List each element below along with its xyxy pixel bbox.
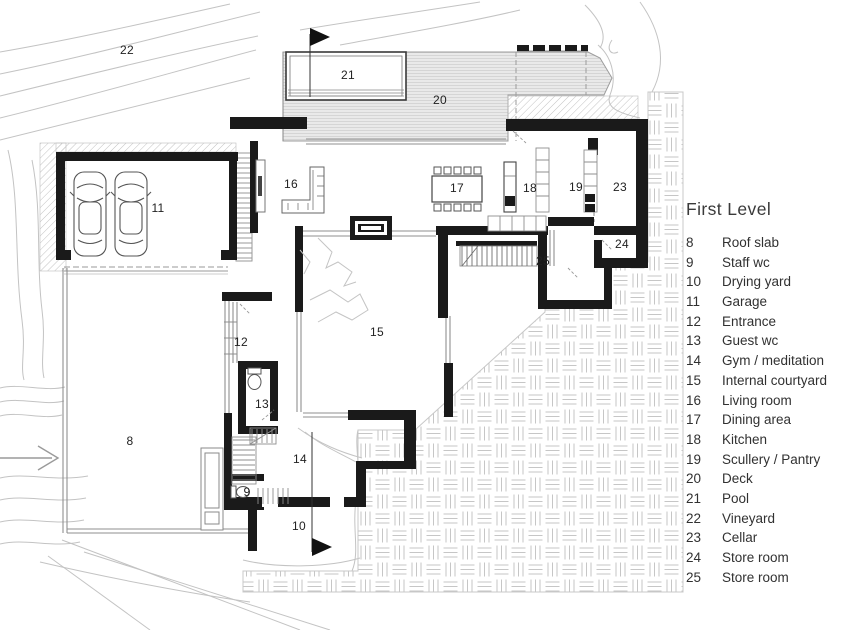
pool bbox=[286, 28, 406, 100]
scullery-shelves bbox=[536, 148, 597, 212]
legend-number: 19 bbox=[686, 452, 722, 467]
legend-number: 23 bbox=[686, 530, 722, 545]
room-label-9: 9 bbox=[244, 485, 251, 499]
room-label-11: 11 bbox=[151, 201, 164, 215]
legend-row: 15Internal courtyard bbox=[686, 373, 850, 393]
legend-number: 18 bbox=[686, 432, 722, 447]
legend-row: 21Pool bbox=[686, 491, 850, 511]
room-label-15: 15 bbox=[370, 325, 384, 339]
legend-number: 9 bbox=[686, 255, 722, 270]
room-label-23: 23 bbox=[613, 180, 627, 194]
legend-label: Internal courtyard bbox=[722, 373, 827, 388]
room-label-18: 18 bbox=[523, 181, 537, 195]
legend-row: 23Cellar bbox=[686, 530, 850, 550]
legend-row: 24Store room bbox=[686, 550, 850, 570]
legend-label: Store room bbox=[722, 570, 789, 585]
toilet-icon bbox=[248, 368, 261, 390]
legend-number: 24 bbox=[686, 550, 722, 565]
kitchen-cabinets bbox=[488, 216, 546, 231]
room-label-17: 17 bbox=[450, 181, 464, 195]
legend-row: 12Entrance bbox=[686, 314, 850, 334]
legend-row: 9Staff wc bbox=[686, 255, 850, 275]
legend-label: Dining area bbox=[722, 412, 791, 427]
legend-label: Pool bbox=[722, 491, 749, 506]
courtyard-sketch bbox=[298, 238, 368, 462]
legend-number: 13 bbox=[686, 333, 722, 348]
legend-number: 20 bbox=[686, 471, 722, 486]
room-label-10: 10 bbox=[292, 519, 306, 533]
room-label-13: 13 bbox=[255, 397, 269, 411]
legend-row: 14Gym / meditation bbox=[686, 353, 850, 373]
fireplace-icon bbox=[350, 216, 392, 240]
legend-label: Living room bbox=[722, 393, 792, 408]
room-label-20: 20 bbox=[433, 93, 447, 107]
legend-row: 20Deck bbox=[686, 471, 850, 491]
legend-label: Entrance bbox=[722, 314, 776, 329]
legend-number: 25 bbox=[686, 570, 722, 585]
legend-number: 17 bbox=[686, 412, 722, 427]
legend-row: 10Drying yard bbox=[686, 274, 850, 294]
legend-label: Roof slab bbox=[722, 235, 779, 250]
legend-row: 18Kitchen bbox=[686, 432, 850, 452]
room-label-24: 24 bbox=[615, 237, 629, 251]
legend-row: 25Store room bbox=[686, 570, 850, 590]
paving-pattern bbox=[243, 92, 683, 592]
room-label-19: 19 bbox=[569, 180, 583, 194]
legend-row: 22Vineyard bbox=[686, 511, 850, 531]
room-label-16: 16 bbox=[284, 177, 298, 191]
legend-row: 11Garage bbox=[686, 294, 850, 314]
page-title: First Level bbox=[686, 199, 850, 220]
garage bbox=[40, 143, 252, 274]
legend-label: Scullery / Pantry bbox=[722, 452, 820, 467]
legend-row: 13Guest wc bbox=[686, 333, 850, 353]
legend-label: Vineyard bbox=[722, 511, 775, 526]
legend-number: 12 bbox=[686, 314, 722, 329]
legend-number: 22 bbox=[686, 511, 722, 526]
room-label-25: 25 bbox=[536, 254, 550, 268]
room-label-22: 22 bbox=[120, 43, 134, 57]
site-arrow-icon bbox=[0, 446, 58, 470]
tv-unit bbox=[256, 160, 265, 212]
legend-label: Cellar bbox=[722, 530, 757, 545]
legend-label: Gym / meditation bbox=[722, 353, 824, 368]
yard-flag-icon bbox=[312, 432, 332, 556]
legend-number: 21 bbox=[686, 491, 722, 506]
legend: First Level 8Roof slab 9Staff wc 10Dryin… bbox=[686, 199, 850, 589]
legend-label: Drying yard bbox=[722, 274, 791, 289]
garage-stairs bbox=[236, 153, 252, 261]
room-label-12: 12 bbox=[234, 335, 248, 349]
roof-hatch-strip bbox=[508, 96, 638, 119]
deck-top-wall bbox=[517, 45, 588, 51]
legend-number: 14 bbox=[686, 353, 722, 368]
skylight bbox=[201, 448, 223, 530]
floor-plan-page: 22 21 20 11 16 17 18 19 23 24 25 15 12 1… bbox=[0, 0, 850, 630]
legend-row: 19Scullery / Pantry bbox=[686, 452, 850, 472]
legend-row: 8Roof slab bbox=[686, 235, 850, 255]
legend-label: Guest wc bbox=[722, 333, 778, 348]
room-label-8: 8 bbox=[127, 434, 134, 448]
car-icon bbox=[70, 172, 110, 256]
kitchen-island bbox=[504, 162, 516, 212]
legend-row: 17Dining area bbox=[686, 412, 850, 432]
legend-label: Store room bbox=[722, 550, 789, 565]
legend-label: Kitchen bbox=[722, 432, 767, 447]
room-label-14: 14 bbox=[293, 452, 307, 466]
legend-label: Garage bbox=[722, 294, 767, 309]
legend-number: 11 bbox=[686, 294, 722, 309]
legend-label: Deck bbox=[722, 471, 753, 486]
car-icon bbox=[111, 172, 151, 256]
legend-label: Staff wc bbox=[722, 255, 770, 270]
legend-number: 8 bbox=[686, 235, 722, 250]
stairs-25 bbox=[460, 246, 537, 266]
legend-number: 16 bbox=[686, 393, 722, 408]
legend-number: 15 bbox=[686, 373, 722, 388]
legend-number: 10 bbox=[686, 274, 722, 289]
legend-row: 16Living room bbox=[686, 393, 850, 413]
room-label-21: 21 bbox=[341, 68, 355, 82]
